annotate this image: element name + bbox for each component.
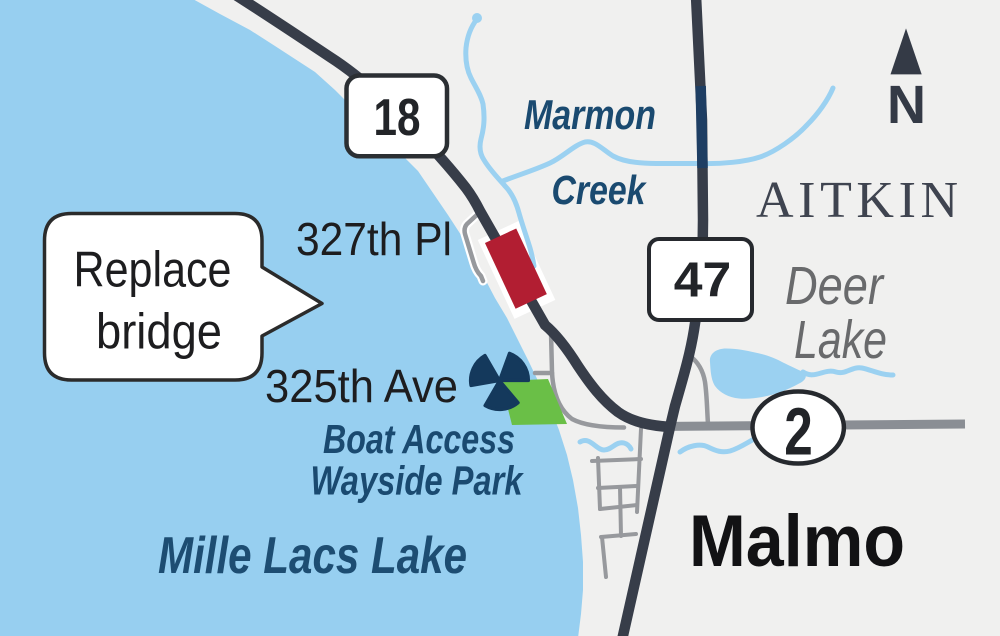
svg-text:327th Pl: 327th Pl [296, 213, 452, 265]
svg-text:Marmon: Marmon [524, 91, 656, 138]
svg-text:Mille Lacs Lake: Mille Lacs Lake [158, 527, 467, 585]
svg-text:18: 18 [374, 89, 421, 147]
svg-text:N: N [887, 75, 926, 135]
svg-text:Creek: Creek [552, 167, 648, 213]
svg-text:Replace: Replace [74, 242, 232, 298]
svg-text:AITKIN: AITKIN [756, 172, 963, 229]
svg-text:Lake: Lake [794, 310, 887, 370]
svg-text:Wayside Park: Wayside Park [311, 458, 525, 504]
svg-text:47: 47 [674, 254, 732, 308]
svg-text:Deer: Deer [785, 256, 885, 316]
svg-text:2: 2 [784, 395, 813, 470]
svg-text:Boat Access: Boat Access [323, 416, 515, 462]
svg-text:325th Ave: 325th Ave [265, 360, 458, 412]
svg-text:Malmo: Malmo [689, 501, 905, 582]
svg-text:bridge: bridge [96, 304, 222, 360]
